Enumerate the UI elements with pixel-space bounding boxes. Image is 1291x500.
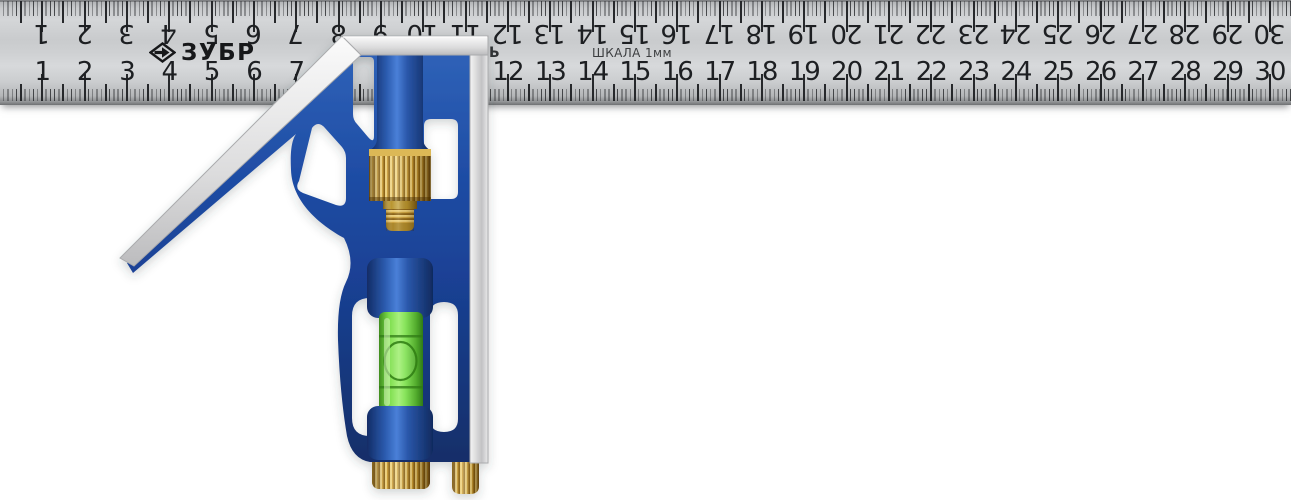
half-cm-tick (994, 1, 996, 23)
half-cm-tick (105, 84, 107, 102)
ruler-number-bot: 15 (619, 60, 650, 85)
half-cm-tick (740, 84, 742, 102)
ruler-mm-ticks-top (0, 1, 1291, 16)
half-cm-tick (359, 1, 361, 23)
vial-bottom-cap (367, 406, 433, 460)
ruler-number-bot: 22 (916, 60, 947, 85)
half-cm-tick (105, 1, 107, 23)
brand-logo: ЗУБР (149, 41, 255, 64)
brass-scriber-pin (452, 458, 479, 494)
ruler-number-bot: 25 (1043, 60, 1074, 85)
ruler-number-top: 16 (662, 20, 693, 45)
half-cm-tick (359, 84, 361, 102)
half-cm-tick (274, 1, 276, 23)
half-cm-tick (1248, 1, 1250, 23)
ruler-mm-ticks-bottom (0, 89, 1291, 102)
half-cm-tick (613, 84, 615, 102)
cast-head-body (127, 50, 480, 462)
half-cm-tick (443, 1, 445, 23)
half-cm-tick (62, 1, 64, 23)
half-cm-tick (951, 84, 953, 102)
half-cm-tick (274, 84, 276, 102)
ruler-number-top: 25 (1043, 20, 1074, 45)
half-cm-tick (62, 84, 64, 102)
vial-graduation-line (379, 335, 423, 338)
half-cm-tick (697, 1, 699, 23)
half-cm-tick (443, 84, 445, 102)
half-cm-tick (1121, 1, 1123, 23)
half-cm-tick (189, 1, 191, 23)
half-cm-tick (782, 1, 784, 23)
half-cm-tick (147, 84, 149, 102)
half-cm-tick (20, 1, 22, 23)
ruler-number-bot: 11 (450, 60, 481, 85)
half-cm-tick (1121, 84, 1123, 102)
level-bubble (385, 342, 417, 380)
ruler-number-bot: 3 (119, 60, 135, 85)
ruler-number-bot: 2 (77, 60, 93, 85)
ruler-number-top: 28 (1170, 20, 1201, 45)
brass-thumb-wheel (372, 453, 430, 489)
half-cm-tick (655, 84, 657, 102)
half-cm-tick (232, 84, 234, 102)
half-cm-tick (1078, 84, 1080, 102)
ruler-number-bot: 17 (704, 60, 735, 85)
vial-graduation-line (379, 386, 423, 389)
half-cm-tick (401, 1, 403, 23)
half-cm-tick (189, 84, 191, 102)
ruler-number-top: 30 (1254, 20, 1285, 45)
ruler-number-top: 10 (408, 20, 439, 45)
half-cm-tick (655, 1, 657, 23)
half-cm-tick (1205, 1, 1207, 23)
ruler-number-bot: 27 (1127, 60, 1158, 85)
half-cm-tick (232, 1, 234, 23)
ruler-number-bot: 9 (373, 60, 389, 85)
ruler-number-top: 11 (450, 20, 481, 45)
ruler-number-bot: 13 (535, 60, 566, 85)
ruler-number-bot: 19 (789, 60, 820, 85)
half-cm-tick (316, 1, 318, 23)
half-cm-tick (867, 84, 869, 102)
ruler-number-top: 27 (1127, 20, 1158, 45)
ruler-number-top: 3 (119, 20, 135, 45)
half-cm-tick (528, 84, 530, 102)
ruler-number-bot: 20 (831, 60, 862, 85)
ruler-number-bot: 26 (1085, 60, 1116, 85)
ruler-number-top: 15 (619, 20, 650, 45)
product-photo-combination-square: 1234567891011121314151617181920212223242… (0, 0, 1291, 500)
half-cm-tick (1163, 1, 1165, 23)
ruler-number-bot: 14 (577, 60, 608, 85)
ruler-number-bot: 21 (873, 60, 904, 85)
vial-top-cap (367, 258, 433, 318)
half-cm-tick (20, 84, 22, 102)
ruler-number-bot: 7 (289, 60, 305, 85)
ruler-number-bot: 10 (408, 60, 439, 85)
ruler-number-top: 23 (958, 20, 989, 45)
half-cm-tick (486, 84, 488, 102)
half-cm-tick (697, 84, 699, 102)
half-cm-tick (1036, 1, 1038, 23)
half-cm-tick (824, 84, 826, 102)
head-right-face-90 (470, 55, 488, 463)
ruler-number-top: 22 (916, 20, 947, 45)
half-cm-tick (401, 84, 403, 102)
half-cm-tick (867, 1, 869, 23)
ruler-number-top: 20 (831, 20, 862, 45)
ruler-number-top: 2 (77, 20, 93, 45)
scale-marking-label: ШКАЛА 1мм (592, 46, 672, 60)
ruler-number-bot: 23 (958, 60, 989, 85)
brass-lock-nut (369, 149, 431, 209)
ruler-number-top: 18 (746, 20, 777, 45)
half-cm-tick (1036, 84, 1038, 102)
half-cm-tick (316, 84, 318, 102)
ruler-number-bot: 12 (492, 60, 523, 85)
ruler-number-bot: 24 (1000, 60, 1031, 85)
ruler-number-top: 14 (577, 20, 608, 45)
partially-hidden-text: Ь (489, 45, 500, 61)
half-cm-tick (570, 84, 572, 102)
ruler-number-top: 24 (1000, 20, 1031, 45)
ruler-number-bot: 28 (1170, 60, 1201, 85)
ruler-number-top: 8 (331, 20, 347, 45)
ruler-number-bot: 1 (35, 60, 51, 85)
half-cm-tick (486, 1, 488, 23)
half-cm-tick (782, 84, 784, 102)
half-cm-tick (570, 1, 572, 23)
ruler-number-bot: 30 (1254, 60, 1285, 85)
zubr-diamond-arrow-icon (149, 42, 176, 63)
half-cm-tick (909, 84, 911, 102)
half-cm-tick (613, 1, 615, 23)
half-cm-tick (1248, 84, 1250, 102)
half-cm-tick (1163, 84, 1165, 102)
ruler-number-top: 13 (535, 20, 566, 45)
ruler-number-bot: 16 (662, 60, 693, 85)
steel-ruler-blade: 1234567891011121314151617181920212223242… (0, 0, 1291, 105)
brand-name: ЗУБР (181, 40, 255, 66)
ruler-number-bot: 8 (331, 60, 347, 85)
ruler-number-top: 1 (35, 20, 51, 45)
ruler-number-top: 12 (492, 20, 523, 45)
half-cm-tick (951, 1, 953, 23)
half-cm-tick (528, 1, 530, 23)
ruler-number-top: 21 (873, 20, 904, 45)
vial-glass-highlight (384, 318, 390, 406)
ruler-number-top: 7 (289, 20, 305, 45)
spirit-level-vial (379, 312, 423, 412)
half-cm-tick (1205, 84, 1207, 102)
half-cm-tick (740, 1, 742, 23)
half-cm-tick (824, 1, 826, 23)
half-cm-tick (994, 84, 996, 102)
ruler-number-bot: 29 (1212, 60, 1243, 85)
ruler-number-top: 19 (789, 20, 820, 45)
ruler-number-top: 26 (1085, 20, 1116, 45)
brass-threaded-stud (386, 209, 414, 231)
ruler-number-top: 17 (704, 20, 735, 45)
ruler-number-bot: 18 (746, 60, 777, 85)
ruler-number-top: 9 (373, 20, 389, 45)
half-cm-tick (1078, 1, 1080, 23)
half-cm-tick (147, 1, 149, 23)
half-cm-tick (909, 1, 911, 23)
ruler-number-top: 29 (1212, 20, 1243, 45)
